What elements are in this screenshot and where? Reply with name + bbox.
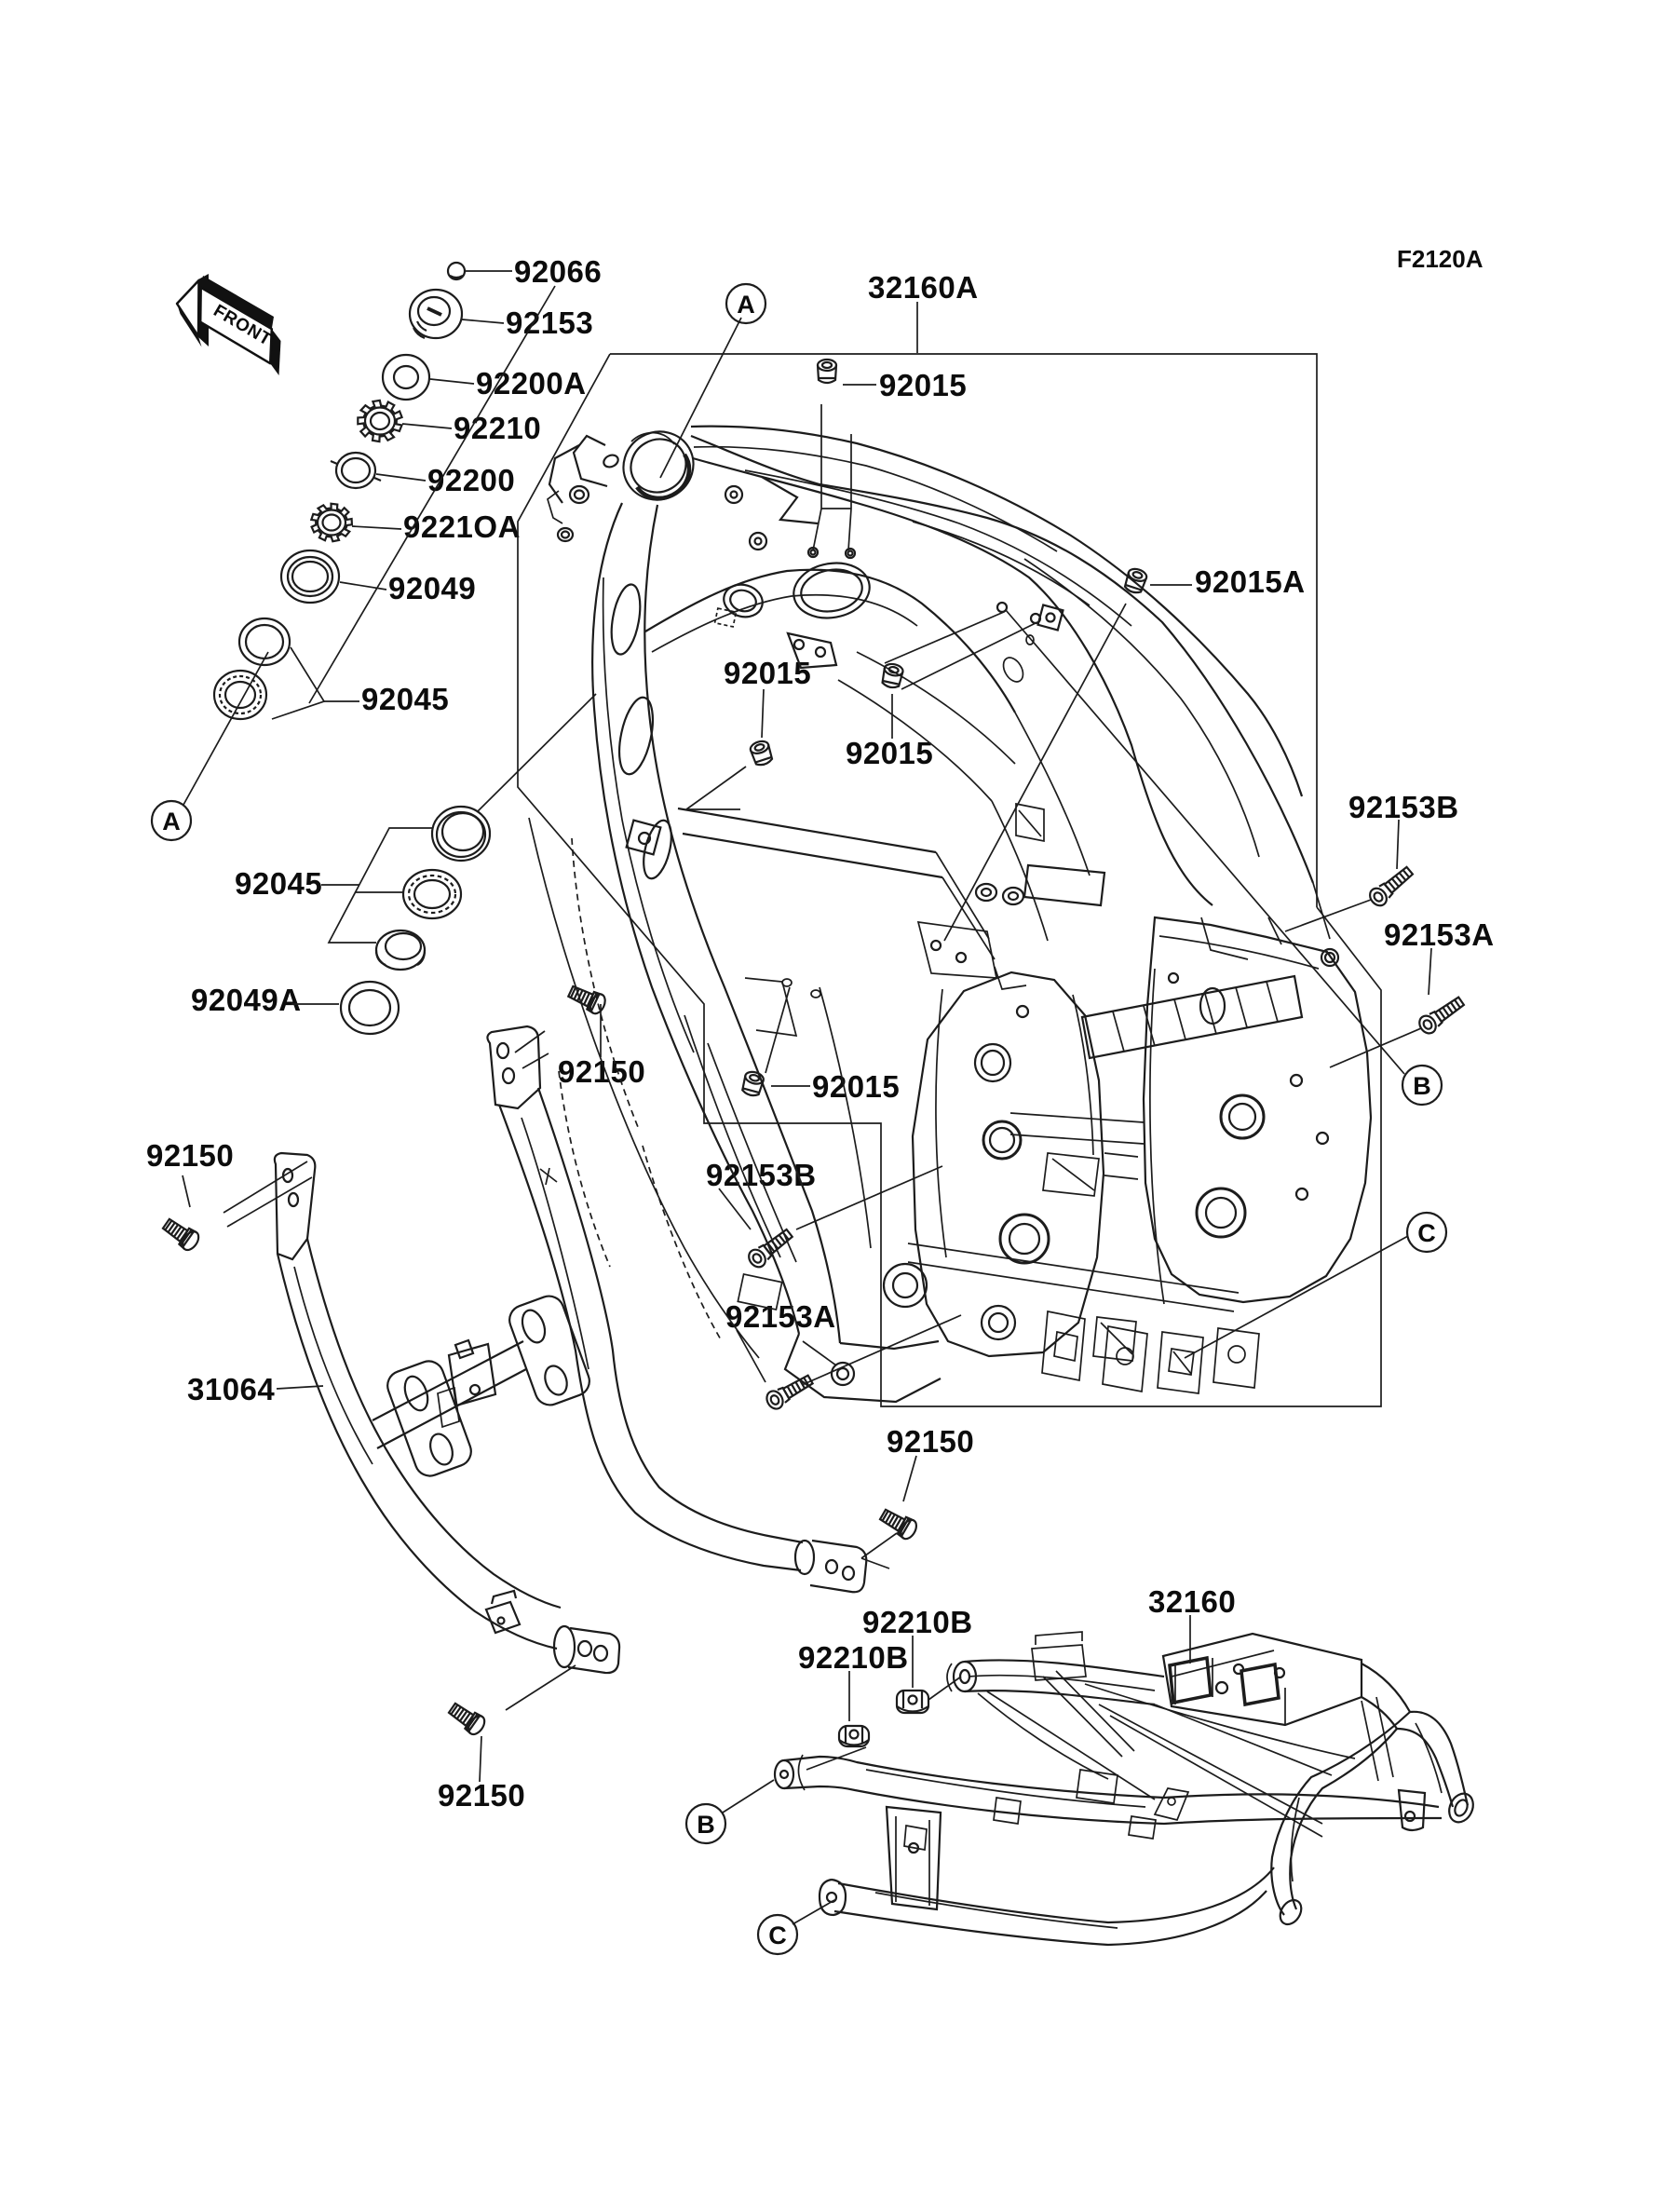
svg-text:92210: 92210 — [454, 411, 541, 445]
svg-text:92210B: 92210B — [798, 1640, 909, 1675]
svg-text:92015: 92015 — [846, 736, 933, 770]
svg-text:92210B: 92210B — [862, 1605, 973, 1639]
svg-text:31064: 31064 — [187, 1372, 275, 1406]
svg-text:92153A: 92153A — [1384, 917, 1495, 952]
svg-text:92153A: 92153A — [725, 1299, 836, 1334]
svg-text:92045: 92045 — [235, 866, 322, 901]
svg-text:92049A: 92049A — [191, 983, 302, 1017]
svg-text:92015: 92015 — [812, 1069, 900, 1104]
svg-text:B: B — [1413, 1072, 1431, 1100]
svg-text:92150: 92150 — [887, 1424, 974, 1459]
svg-text:B: B — [697, 1811, 715, 1839]
svg-text:92015A: 92015A — [1195, 564, 1306, 599]
svg-text:F2120A: F2120A — [1397, 245, 1484, 273]
svg-text:92153B: 92153B — [1348, 790, 1459, 824]
svg-text:92015: 92015 — [879, 368, 967, 402]
svg-text:32160: 32160 — [1148, 1584, 1236, 1619]
svg-text:92066: 92066 — [514, 254, 602, 289]
svg-text:92045: 92045 — [361, 682, 449, 716]
svg-text:A: A — [737, 291, 755, 319]
svg-text:A: A — [162, 808, 181, 835]
svg-text:C: C — [1417, 1219, 1436, 1247]
svg-text:92153: 92153 — [506, 306, 593, 340]
svg-text:92150: 92150 — [146, 1138, 234, 1173]
svg-text:92049: 92049 — [388, 571, 476, 605]
svg-text:C: C — [768, 1922, 787, 1949]
svg-text:92153B: 92153B — [706, 1158, 817, 1192]
svg-text:92200A: 92200A — [476, 366, 587, 401]
svg-text:92150: 92150 — [438, 1778, 525, 1813]
svg-text:32160A: 32160A — [868, 270, 979, 305]
